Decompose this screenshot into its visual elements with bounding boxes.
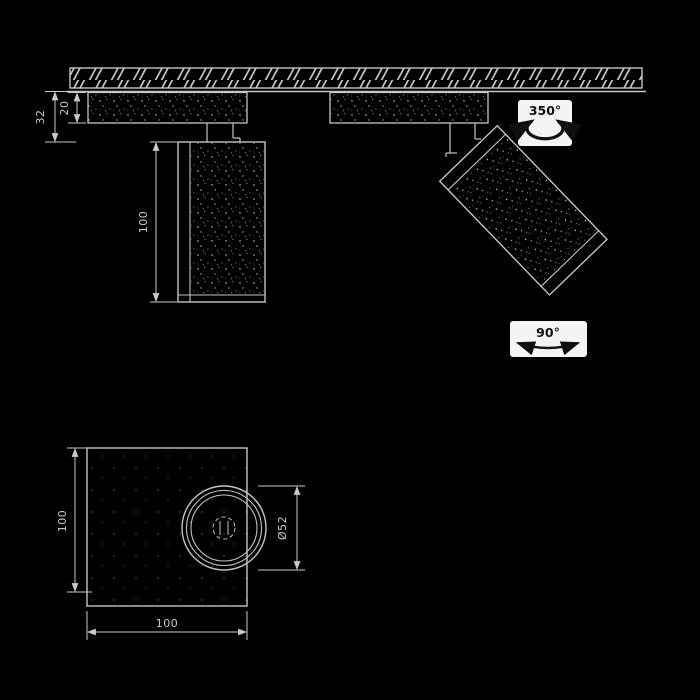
dim-plate-width-label: 100 [156,617,179,630]
bottom-view-plate [87,448,247,606]
dim-body-length-label: 100 [137,211,150,234]
lamp-body-tilted [440,126,607,295]
pan-rotation-symbol: 350° [518,100,572,146]
dimension-body-length: 100 [137,142,177,302]
dimension-base-height: 20 [58,93,86,124]
bracket-neck-right [446,123,481,157]
dim-plate-height-label: 100 [56,510,69,533]
technical-drawing-canvas: 20 32 100 350° 90° [0,0,700,700]
dimension-plate-width: 100 [87,611,247,640]
dim-lens-diameter-label: Ø52 [276,516,289,540]
dim-total-drop-label: 32 [34,110,47,125]
luminaire-technical-drawing: 20 32 100 350° 90° [0,0,700,700]
dim-base-height-label: 20 [58,101,71,116]
mounting-plate-left [88,93,247,124]
mounting-plate-right [330,93,488,124]
lamp-body-straight [178,142,265,302]
section-view: 20 32 100 350° 90° [34,68,646,357]
bottom-view: Ø52 100 100 [56,448,305,640]
pan-rotation-label: 350° [529,103,561,118]
ceiling-hatch-band [66,68,646,92]
dimension-total-drop: 32 [34,92,76,143]
tilt-rotation-symbol: 90° [510,321,587,357]
bracket-neck-left [207,123,240,142]
dimension-lens-diameter: Ø52 [258,486,305,570]
tilt-rotation-label: 90° [536,325,560,340]
